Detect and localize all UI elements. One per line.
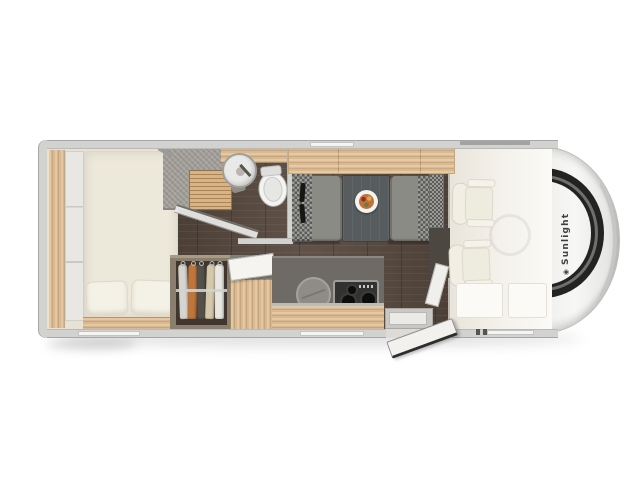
pillow xyxy=(85,280,128,316)
seat-cushion xyxy=(461,247,490,282)
brand-logo: ◉ Sunlight xyxy=(559,198,573,290)
seat-armrest xyxy=(463,239,491,248)
fridge-cabinet-front xyxy=(230,279,272,330)
motorhome-floorplan: ◉ Sunlight xyxy=(0,0,640,480)
hob-knobs xyxy=(359,285,375,288)
steering-wheel xyxy=(489,214,531,256)
hob-burner xyxy=(346,284,358,296)
wall-rear xyxy=(38,140,47,338)
headboard-panels xyxy=(65,151,84,321)
overhead-locker xyxy=(288,146,455,174)
dinette-bench-left-seat xyxy=(312,176,342,241)
brand-name: Sunlight xyxy=(561,213,571,265)
window-cab-door xyxy=(460,141,530,145)
pillow xyxy=(130,279,174,316)
bed-side-shelf xyxy=(49,150,65,328)
sun-icon: ◉ xyxy=(562,268,570,275)
window-cab xyxy=(487,330,534,335)
wardrobe-rail xyxy=(176,289,227,292)
sink-lid xyxy=(301,289,325,299)
vehicle-shadow-rear xyxy=(46,338,136,350)
cab-seat xyxy=(448,238,492,289)
seat-cushion xyxy=(465,187,494,221)
seat-armrest xyxy=(467,219,495,227)
door-hinge-mark xyxy=(483,329,487,335)
dinette-bench-right-seat xyxy=(390,176,418,241)
vent-unit xyxy=(429,174,444,228)
window-bedroom xyxy=(78,331,140,336)
bench-shadow xyxy=(294,240,340,244)
kitchen-drawers xyxy=(272,303,384,330)
toilet xyxy=(256,165,287,207)
floor-mat xyxy=(508,283,547,318)
window-kitchen xyxy=(300,331,364,336)
window-dinette xyxy=(310,142,354,147)
floor-mat xyxy=(456,283,503,318)
washbasin xyxy=(222,153,257,188)
cab-seat xyxy=(452,178,495,229)
bathroom-wall xyxy=(238,238,293,244)
entry-step-inner xyxy=(389,312,427,325)
bench-shadow xyxy=(388,240,430,244)
food xyxy=(359,194,374,209)
seat-armrest xyxy=(467,179,495,187)
door-hinge-mark xyxy=(476,329,480,335)
windshield xyxy=(546,168,606,298)
dinner-plate xyxy=(355,190,378,213)
